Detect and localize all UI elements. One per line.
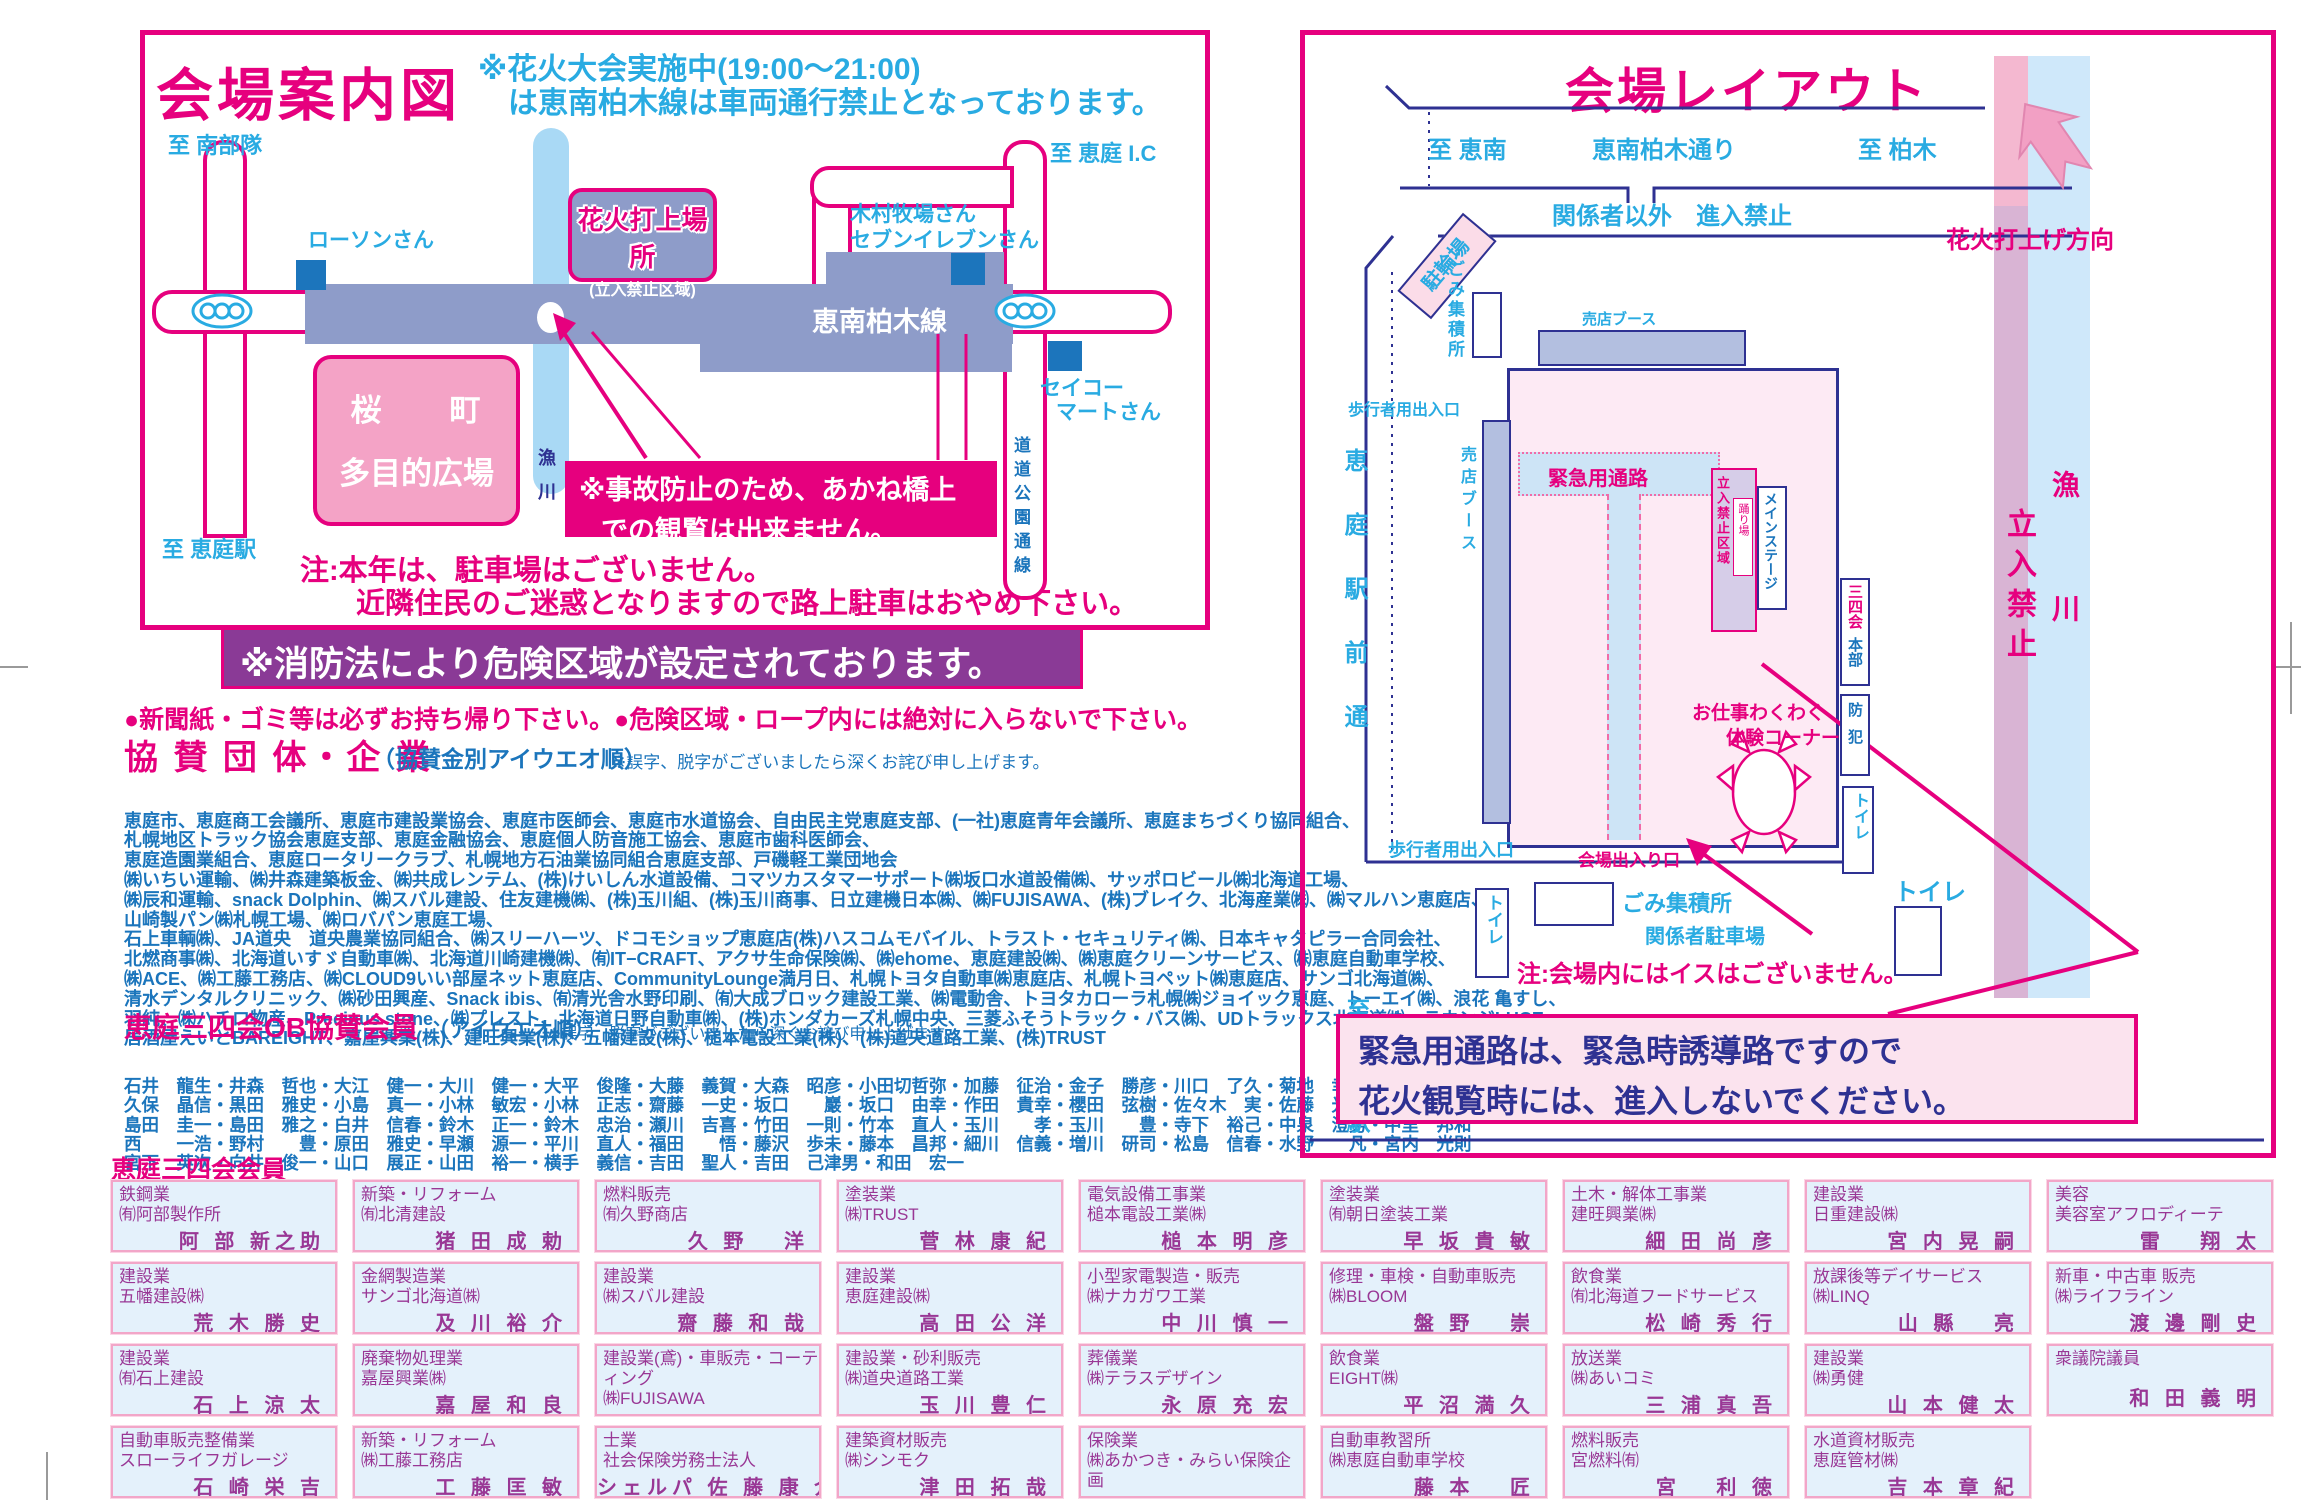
river-band-label: 漁川 [2044,470,2084,622]
emergency-note-line2: 花火観覧時には、進入しないでください。 [1358,1076,2134,1122]
member-company: 恵庭管材㈱ [1813,1451,2029,1471]
launch-direction-label: 花火打上げ方向 [1946,220,2114,255]
hq-label: 三四会本部 [1844,584,1865,667]
layout-title: 会場レイアウト [1565,52,1929,123]
street-top-label: 恵南柏木通り [1592,130,1736,165]
member-category: 塗装業 [1329,1185,1545,1205]
member-company: 嘉屋興業㈱ [361,1369,577,1389]
ob-member-row: 島田 圭一・島田 雅之・白井 信春・鈴木 正一・鈴木 忠治・瀬川 吉喜・竹田 一… [124,1116,1472,1135]
member-name: 高 田 公 洋 [919,1307,1051,1334]
member-category: 建設業 [119,1267,335,1287]
staff-parking-label: 関係者駐車場 [1645,920,1765,949]
member-card: 建築資材販売 ㈱シンモク 津 田 拓 哉 [837,1426,1063,1498]
member-company: ㈱スバル建設 [603,1287,819,1307]
member-card: 塗装業 ㈲朝日塗装工業 早 坂 貴 敏 [1321,1180,1547,1252]
plaza-label-line2: 多目的広場 [317,448,516,493]
member-name: シェルパ 佐 藤 康 介 [597,1471,821,1498]
member-card: 建設業 ㈱スバル建設 齋 藤 和 哉 [595,1262,821,1334]
fire-law-banner-text: ※消防法により危険区域が設定されております。 [240,636,1080,687]
member-company: ㈲石上建設 [119,1369,335,1389]
member-name: 盤 野 崇 [1414,1307,1535,1334]
main-stage-label: メインステージ [1761,492,1781,590]
ob-member-row: 宮下 英次・向井 俊一・山口 展正・山田 裕一・横手 義信・吉田 聖人・吉田 己… [124,1154,1472,1173]
accident-warning-box: ※事故防止のため、あかね橋上 での観覧は出来ません。 [565,461,997,537]
member-category: 修理・車検・自動車販売 [1329,1267,1545,1287]
river-label-char1: 漁 [538,444,556,470]
crop-mark-right [2273,666,2301,668]
member-category: 自動車教習所 [1329,1431,1545,1451]
member-category: 金網製造業 [361,1267,577,1287]
member-name: 及 川 裕 介 [435,1307,567,1334]
member-category: 建設業 [603,1267,819,1287]
member-category: 塗装業 [845,1185,1061,1205]
member-card: 小型家電製造・販売 ㈱ナカガワ工業 中 川 慎 一 [1079,1262,1305,1334]
member-name: 阿 部 新之助 [179,1225,325,1252]
sponsors-subnote2: ※誤字、脱字がございましたら深くお詫び申し上げます。 [612,748,1050,773]
closed-road-band-lower [700,344,1012,372]
emergency-note-line1: 緊急用通路は、緊急時誘導路ですので [1358,1026,2134,1072]
member-card: 建設業・砂利販売 ㈱道央道路工業 玉 川 豊 仁 [837,1344,1063,1416]
member-company: ㈲北海道フードサービス [1571,1287,1787,1307]
member-company: ㈱LINQ [1813,1287,2029,1307]
member-company: ㈱FUJISAWA [603,1389,819,1409]
launch-site-label: 花火打上場所 [572,200,713,274]
member-name: 津 田 拓 哉 [919,1471,1051,1498]
keinan-kashiwagi-line-label: 恵南柏木線 [812,300,947,339]
launch-site-box: 花火打上場所 (立入禁止区域) [568,188,717,282]
member-company: ㈱あいコミ [1571,1369,1787,1389]
sakuramachi-plaza-box: 桜 町 多目的広場 [313,355,520,526]
member-card: 自動車教習所 ㈱恵庭自動車学校 藤 本 匠 [1321,1426,1547,1498]
member-name: 永 原 充 宏 [1161,1389,1293,1416]
member-card: 燃料販売 ㈲久野商店 久 野 洋 [595,1180,821,1252]
to-kashiwagi-label: 至 柏木 [1858,130,1937,165]
plaza-label-line1: 桜 町 [317,385,516,430]
seicomart-label-line2: マートさん [1056,396,1161,426]
member-card: 水道資材販売 恵庭管材㈱ 吉 本 章 紀 [1805,1426,2031,1498]
lawson-marker [296,260,326,290]
stage-restricted-label: 立入禁止区域 [1713,476,1732,566]
member-name: 嘉 屋 和 良 [435,1389,567,1416]
trash-area-bottom-box [1534,882,1614,926]
member-card: 鉄鋼業 ㈲阿部製作所 阿 部 新之助 [111,1180,337,1252]
member-company: ㈲北清建設 [361,1205,577,1225]
member-company: 日重建設㈱ [1813,1205,2029,1225]
member-card: 建設業 五幡建設㈱ 荒 木 勝 史 [111,1262,337,1334]
member-card: 燃料販売 宮燃料㈲ 宮 利 徳 [1563,1426,1789,1498]
member-company: ㈱ライフライン [2055,1287,2271,1307]
accident-warning-line2: での観覧は出来ません。 [601,509,997,548]
member-card: 建設業 恵庭建設㈱ 高 田 公 洋 [837,1262,1063,1334]
member-name: 平 沼 満 久 [1403,1389,1535,1416]
member-category: 新築・リフォーム [361,1431,577,1451]
staff-only-label: 関係者以外 進入禁止 [1552,196,1792,231]
venue-area [1507,368,1839,848]
member-name: 松 崎 秀 行 [1645,1307,1777,1334]
member-name: 齋 藤 和 哉 [677,1307,809,1334]
crop-mark-right-vertical [2290,622,2292,714]
member-category: 新築・リフォーム [361,1185,577,1205]
member-company: スローライフガレージ [119,1451,335,1471]
member-name: 相 良 比呂樹 [663,1409,809,1416]
to-eniwa-ic-label: 至 恵庭 I.C [1050,136,1156,168]
ob-member-row: 久保 晶信・黒田 雅史・小島 真一・小林 敏宏・小林 正志・齋藤 一史・坂口 巖… [124,1096,1472,1115]
security-label: 防犯 [1844,702,1865,756]
to-keinan-label: 至 恵南 [1428,130,1507,165]
member-category: 飲食業 [1571,1267,1787,1287]
member-category: 美容 [2055,1185,2271,1205]
member-card: 飲食業 EIGHT㈱ 平 沼 満 久 [1321,1344,1547,1416]
member-name: 宮 利 徳 [1656,1471,1777,1498]
crop-mark-left [0,666,28,668]
launch-direction-band [1994,56,2028,206]
member-card: 飲食業 ㈲北海道フードサービス 松 崎 秀 行 [1563,1262,1789,1334]
member-category: 建築資材販売 [845,1431,1061,1451]
member-category: 放課後等デイサービス [1813,1267,2029,1287]
seven-eleven-label: セブンイレブンさん [850,224,1039,254]
seicomart-marker [1048,341,1082,371]
sponsors-subnote1: （協賛金別アイウエオ順） [372,740,647,774]
member-company: 美容室アフロディーテ [2055,1205,2271,1225]
member-name: 山 本 健 太 [1887,1389,2019,1416]
river-label-char2: 川 [538,478,556,504]
member-category: 土木・解体工事業 [1571,1185,1787,1205]
member-card: 新車・中古車 販売 ㈱ライフライン 渡 邊 剛 史 [2047,1262,2273,1334]
member-company: 槌本電設工業㈱ [1087,1205,1303,1225]
member-category: 建設業(鳶)・車販売・コーティング [603,1349,819,1389]
lawson-label: ローソンさん [308,224,434,254]
river-band-char1: 漁 [2049,470,2080,498]
member-name: 長 谷 部 洋 介 [1126,1491,1293,1498]
emergency-note-box: 緊急用通路は、緊急時誘導路ですので 花火観覧時には、進入しないでください。 [1336,1014,2138,1124]
member-card: 自動車販売整備業 スローライフガレージ 石 崎 栄 吉 [111,1426,337,1498]
pedestrian-gate-bottom-label: 歩行者用出入口 [1388,836,1514,862]
member-company: EIGHT㈱ [1329,1369,1545,1389]
trash-area-top-box [1472,292,1502,358]
trash-area-top-label: ごみ集積所 [1442,260,1467,360]
venue-gate-label: 会場出入り口 [1578,846,1680,871]
member-category: 自動車販売整備業 [119,1431,335,1451]
member-name: 渡 邊 剛 史 [2129,1307,2261,1334]
ob-member-row: 石井 龍生・井森 哲也・大江 健一・大川 健一・大平 俊隆・大藤 義賀・大森 昭… [124,1077,1472,1096]
ob-member-row: 西 一浩・野村 豊・原田 雅史・早瀬 源一・平川 直人・福田 悟・藤沢 歩未・藤… [124,1135,1472,1154]
member-card: 土木・解体工事業 建旺興業㈱ 細 田 尚 彦 [1563,1180,1789,1252]
member-company: サンゴ北海道㈱ [361,1287,577,1307]
member-card: 新築・リフォーム ㈲北清建設 猪 田 成 勅 [353,1180,579,1252]
member-category: 建設業 [1813,1185,2029,1205]
member-company: ㈲阿部製作所 [119,1205,335,1225]
pedestrian-gate-top-label: 歩行者用出入口 [1348,396,1460,420]
member-category: 士業 [603,1431,819,1451]
member-category: 建設業 [1813,1349,2029,1369]
member-card: 金網製造業 サンゴ北海道㈱ 及 川 裕 介 [353,1262,579,1334]
toilet-west-label: トイレ [1481,894,1506,945]
member-name: 玉 川 豊 仁 [919,1389,1051,1416]
member-card: 葬儀業 ㈱テラスデザイン 永 原 充 宏 [1079,1344,1305,1416]
member-category: 建設業 [845,1267,1061,1287]
member-card: 士業 社会保険労務士法人 シェルパ 佐 藤 康 介 [595,1426,821,1498]
member-name: 猪 田 成 勅 [435,1225,567,1252]
member-category: 燃料販売 [603,1185,819,1205]
member-card: 美容 美容室アフロディーテ 雷 翔 太 [2047,1180,2273,1252]
member-name: 藤 本 匠 [1414,1471,1535,1498]
member-company: ㈱工藤工務店 [361,1451,577,1471]
booth-bar-left [1482,420,1511,824]
member-company: ㈱あかつき・みらい保険企画 [1087,1451,1303,1491]
member-name: 中 川 慎 一 [1161,1307,1293,1334]
member-name: 工 藤 匡 敏 [435,1471,567,1498]
member-category: 小型家電製造・販売 [1087,1267,1303,1287]
member-card: 保険業 ㈱あかつき・みらい保険企画 長 谷 部 洋 介 [1079,1426,1305,1498]
member-category: 葬儀業 [1087,1349,1303,1369]
member-company: ㈱TRUST [845,1205,1061,1225]
member-card: 衆議院議員 和 田 義 明 [2047,1344,2273,1416]
member-name: 久 野 洋 [688,1225,809,1252]
members-grid: 鉄鋼業 ㈲阿部製作所 阿 部 新之助 新築・リフォーム ㈲北清建設 猪 田 成 … [111,1180,2273,1498]
member-category: 飲食業 [1329,1349,1545,1369]
member-card: 建設業 ㈲石上建設 石 上 涼 太 [111,1344,337,1416]
member-company: 建旺興業㈱ [1571,1205,1787,1225]
to-eniwa-station-label: 至 恵庭駅 [162,532,256,564]
member-name: 荒 木 勝 史 [193,1307,325,1334]
member-company: ㈲朝日塗装工業 [1329,1205,1545,1225]
member-category: 新車・中古車 販売 [2055,1267,2271,1287]
member-card: 放送業 ㈱あいコミ 三 浦 真 吾 [1563,1344,1789,1416]
member-name: 石 上 涼 太 [193,1389,325,1416]
work-corner-label-line2: 体験コーナー [1726,723,1840,750]
to-nanbutai-label: 至 南部隊 [168,128,262,160]
accident-warning-line1: ※事故防止のため、あかね橋上 [579,468,997,507]
member-card: 建設業 ㈱勇健 山 本 健 太 [1805,1344,2031,1416]
member-card: 新築・リフォーム ㈱工藤工務店 工 藤 匡 敏 [353,1426,579,1498]
member-name: 和 田 義 明 [2129,1382,2261,1411]
toilet-outer-label: トイレ [1894,872,1966,907]
member-category: 保険業 [1087,1431,1303,1451]
road-west-vertical [203,140,247,538]
member-card: 放課後等デイサービス ㈱LINQ 山 縣 亮 [1805,1262,2031,1334]
member-company: ㈱シンモク [845,1451,1061,1471]
member-card: 修理・車検・自動車販売 ㈱BLOOM 盤 野 崇 [1321,1262,1547,1334]
work-corner-label-line1: お仕事わくわく [1692,698,1825,725]
member-company: ㈱恵庭自動車学校 [1329,1451,1545,1471]
member-company: 社会保険労務士法人 [603,1451,819,1471]
traffic-notice-line2: は恵南柏木線は車両通行禁止となっております。 [508,78,1162,122]
member-category: 建設業 [119,1349,335,1369]
booth-top-label: 売店ブース [1582,308,1656,329]
no-chairs-note: 注:会場内にはイスはございません。 [1517,954,1908,989]
member-name: 菅 林 康 紀 [919,1225,1051,1252]
member-category: 衆議院議員 [2055,1349,2271,1369]
restricted-band-label: 立入禁止 [1996,508,2040,668]
member-category: 鉄鋼業 [119,1185,335,1205]
prefectural-road-label: 道道公園通線 [1008,436,1033,580]
member-name: 槌 本 明 彦 [1161,1225,1293,1252]
river-band-char2: 川 [2049,594,2080,622]
trash-area-bottom-label: ごみ集積所 [1622,886,1732,918]
member-name: 三 浦 真 吾 [1645,1389,1777,1416]
hq-label-34kai: 三四会 [1846,584,1863,629]
akane-bridge-marker [537,302,564,333]
crop-mark-bottom-left [46,1452,48,1500]
hq-label-honbu: 本部 [1846,637,1863,667]
member-category: 燃料販売 [1571,1431,1787,1451]
member-company: ㈲久野商店 [603,1205,819,1225]
member-name: 早 坂 貴 敏 [1403,1225,1535,1252]
member-company: ㈱勇健 [1813,1369,2029,1389]
emergency-corridor-label: 緊急用通路 [1548,462,1648,491]
member-card: 塗装業 ㈱TRUST 菅 林 康 紀 [837,1180,1063,1252]
member-card: 電気設備工事業 槌本電設工業㈱ 槌 本 明 彦 [1079,1180,1305,1252]
member-card: 建設業(鳶)・車販売・コーティング ㈱FUJISAWA 相 良 比呂樹 [595,1344,821,1416]
member-category: 電気設備工事業 [1087,1185,1303,1205]
booth-left-label: 売店ブース [1454,446,1478,556]
member-company: ㈱テラスデザイン [1087,1369,1303,1389]
street-left-label: 恵庭駅前通 [1336,448,1371,768]
member-company: 恵庭建設㈱ [845,1287,1061,1307]
member-category: 放送業 [1571,1349,1787,1369]
member-name: 石 崎 栄 吉 [193,1471,325,1498]
member-name: 吉 本 章 紀 [1887,1471,2019,1498]
member-category: 水道資材販売 [1813,1431,2029,1451]
member-company: ㈱道央道路工業 [845,1369,1061,1389]
booth-bar-top [1538,330,1746,366]
member-company: 五幡建設㈱ [119,1287,335,1307]
member-company: ㈱ナカガワ工業 [1087,1287,1303,1307]
member-name: 細 田 尚 彦 [1645,1225,1777,1252]
ob-members-list: 石井 龍生・井森 哲也・大江 健一・大川 健一・大平 俊隆・大藤 義賀・大森 昭… [124,1038,1472,1174]
launch-site-sublabel: (立入禁止区域) [572,276,713,300]
member-company: ㈱BLOOM [1329,1287,1545,1307]
member-category: 建設業・砂利販売 [845,1349,1061,1369]
guide-map-title: 会場案内図 [156,50,461,132]
member-name: 宮 内 晃 嗣 [1887,1225,2019,1252]
member-company: 宮燃料㈲ [1571,1451,1787,1471]
member-card: 建設業 日重建設㈱ 宮 内 晃 嗣 [1805,1180,2031,1252]
member-category: 廃棄物処理業 [361,1349,577,1369]
seven-eleven-marker [951,253,985,285]
member-name: 山 縣 亮 [1898,1307,2019,1334]
member-name: 雷 翔 太 [2140,1225,2261,1252]
odoriba-label: 踊り場 [1735,503,1751,536]
member-card: 廃棄物処理業 嘉屋興業㈱ 嘉 屋 和 良 [353,1344,579,1416]
fire-law-banner: ※消防法により危険区域が設定されております。 [221,627,1083,689]
emergency-corridor-vertical [1607,494,1641,840]
toilet-east-label: トイレ [1847,792,1871,840]
